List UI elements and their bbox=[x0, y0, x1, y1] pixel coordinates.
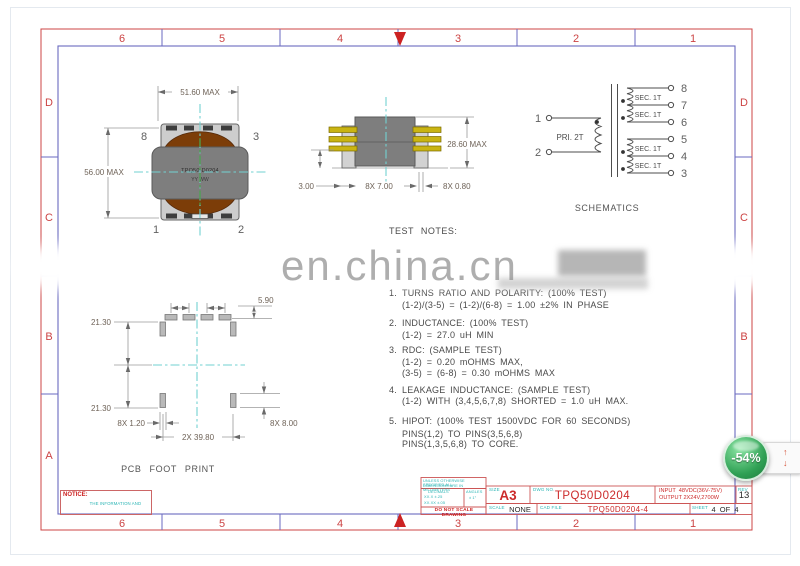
scale-value: NONE bbox=[502, 505, 538, 514]
schematic-pin: 4 bbox=[681, 151, 687, 163]
revision: 13 bbox=[736, 490, 752, 501]
schematic-title: SCHEMATICS bbox=[575, 203, 639, 213]
footprint-title: PCB FOOT PRINT bbox=[121, 464, 215, 474]
zone-col-label: 6 bbox=[119, 33, 125, 45]
zone-col-label: 3 bbox=[455, 518, 461, 530]
zone-row-label: B bbox=[740, 331, 747, 343]
schematic-pin: 1 bbox=[535, 113, 541, 125]
note-line: (3-5) = (6-8) = 0.30 mOHMS MAX bbox=[402, 368, 555, 378]
pin-number: 8 bbox=[141, 131, 147, 143]
dim-height: 56.00 MAX bbox=[84, 168, 124, 177]
schematic-pin: 6 bbox=[681, 117, 687, 129]
tolerance-value: XX.X ±.25 bbox=[424, 495, 442, 500]
note-line: PINS(1,2) TO PINS(3,5,6,8) bbox=[402, 429, 522, 439]
sheet-size: A3 bbox=[486, 488, 530, 503]
down-arrow-icon[interactable]: ↓ bbox=[783, 459, 788, 468]
zone-col-label: 4 bbox=[337, 33, 343, 45]
secondary-winding-label: SEC. 1T bbox=[635, 163, 662, 170]
note-line: INDUCTANCE: (100% TEST) bbox=[402, 318, 528, 328]
watermark-glow bbox=[14, 245, 106, 289]
zone-row-label: C bbox=[45, 212, 53, 224]
secondary-winding-label: SEC. 1T bbox=[635, 95, 662, 102]
dim-pad-width: 8X 1.20 bbox=[117, 419, 145, 428]
sheet-value: 4 OF 4 bbox=[702, 505, 748, 514]
zone-col-label: 6 bbox=[119, 518, 125, 530]
notice-box: NOTICE: THE INFORMATION AND DESIGN CONTA… bbox=[60, 490, 152, 515]
drawing-number: TPQ50D0204 bbox=[530, 490, 655, 502]
dim-side-height: 28.60 MAX bbox=[447, 140, 487, 149]
dim-width: 51.60 MAX bbox=[180, 88, 220, 97]
schematic-pin: 7 bbox=[681, 100, 687, 112]
watermark-blurred-glyphs bbox=[498, 278, 648, 289]
zone-col-label: 1 bbox=[690, 33, 696, 45]
zone-row-label: A bbox=[45, 450, 53, 462]
schematic-pin: 3 bbox=[681, 168, 687, 180]
do-not-scale-warning: DO NOT SCALE DRAWING bbox=[423, 508, 485, 518]
up-arrow-icon[interactable]: ↑ bbox=[783, 448, 788, 457]
note-number: 3. bbox=[389, 345, 397, 355]
note-number: 5. bbox=[389, 416, 397, 426]
note-line: (1-2) WITH (3,4,5,6,7,8) SHORTED = 1.0 u… bbox=[402, 396, 628, 406]
zone-col-label: 2 bbox=[573, 33, 579, 45]
angles-label: ANGLES bbox=[466, 490, 482, 495]
note-line: RDC: (SAMPLE TEST) bbox=[402, 345, 502, 355]
dim-span: 2X 39.80 bbox=[182, 433, 215, 442]
dim-pin: 8X 0.80 bbox=[443, 182, 471, 191]
schematic-pin: 5 bbox=[681, 134, 687, 146]
discount-badge[interactable]: -54% bbox=[723, 435, 769, 481]
dim-upper: 21.30 bbox=[91, 318, 112, 327]
drawing-viewer: 6 5 4 3 2 1 6 5 4 3 2 1 D C B A D C B A bbox=[0, 0, 800, 566]
side-view: 28.60 MAX 3.00 8X 7.00 8X 0.80 bbox=[298, 97, 492, 192]
notice-label: NOTICE: bbox=[63, 492, 88, 498]
schematic-pin: 2 bbox=[535, 147, 541, 159]
angle-tolerance-value: ± 1° bbox=[469, 496, 476, 501]
zone-col-label: 5 bbox=[219, 518, 225, 530]
note-number: 2. bbox=[389, 318, 397, 328]
pcb-footprint: 5.90 21.30 21.30 8X 1.20 2X 39.80 8X 8.0… bbox=[91, 296, 298, 474]
watermark-blurred-glyphs bbox=[558, 250, 646, 276]
dim-pad-gap: 5.90 bbox=[258, 296, 274, 305]
zone-col-label: 2 bbox=[573, 518, 579, 530]
pin-number: 1 bbox=[153, 224, 159, 236]
zone-col-label: 1 bbox=[690, 518, 696, 530]
zone-col-label: 5 bbox=[219, 33, 225, 45]
pin-number: 2 bbox=[238, 224, 244, 236]
badge-value: -54% bbox=[731, 451, 760, 465]
schematic: 1 2 8 7 6 5 4 3 PRI. 2T SEC. 1T SEC. 1T … bbox=[535, 83, 687, 213]
note-line: (1-2) = 0.20 mOHMS MAX, bbox=[402, 357, 523, 367]
zone-row-label: D bbox=[740, 97, 748, 109]
note-line: LEAKAGE INDUCTANCE: (SAMPLE TEST) bbox=[402, 385, 590, 395]
spec-input: INPUT 48VDC(36V-75V) bbox=[659, 488, 722, 494]
watermark-glow bbox=[698, 243, 770, 291]
badge-gloss bbox=[733, 441, 759, 451]
zone-col-label: 3 bbox=[455, 33, 461, 45]
secondary-winding-label: SEC. 1T bbox=[635, 112, 662, 119]
secondary-winding-label: SEC. 1T bbox=[635, 146, 662, 153]
tolerance-value: XX.XX ±.05 bbox=[424, 501, 445, 506]
spec-output: OUTPUT 2X24V,2700W bbox=[659, 495, 719, 501]
dim-lower: 21.30 bbox=[91, 404, 112, 413]
dim-pad-length: 8X 8.00 bbox=[270, 419, 298, 428]
dim-pitch: 8X 7.00 bbox=[365, 182, 393, 191]
note-line: PINS(1,3,5,6,8) TO CORE. bbox=[402, 439, 519, 449]
notice-text: THE INFORMATION AND DESIGN CONTAINED HER… bbox=[63, 501, 141, 515]
note-line: (1-2)/(3-5) = (1-2)/(6-8) = 1.00 ±2% IN … bbox=[402, 300, 609, 310]
pin-number: 3 bbox=[253, 131, 259, 143]
zone-row-label: D bbox=[45, 97, 53, 109]
zone-col-label: 4 bbox=[337, 518, 343, 530]
zone-row-label: B bbox=[45, 331, 52, 343]
primary-winding-label: PRI. 2T bbox=[556, 133, 583, 142]
side-body bbox=[355, 117, 415, 166]
note-line: HIPOT: (100% TEST 1500VDC FOR 60 SECONDS… bbox=[402, 416, 630, 426]
note-number: 4. bbox=[389, 385, 397, 395]
zone-row-label: C bbox=[740, 212, 748, 224]
test-notes-title: TEST NOTES: bbox=[389, 226, 457, 236]
dim-standoff: 3.00 bbox=[298, 182, 314, 191]
watermark-text: en.china.cn bbox=[281, 242, 518, 290]
cad-file-value: TPQ50D0204-4 bbox=[558, 505, 678, 514]
note-line: (1-2) = 27.0 uH MIN bbox=[402, 330, 494, 340]
schematic-pin: 8 bbox=[681, 83, 687, 95]
